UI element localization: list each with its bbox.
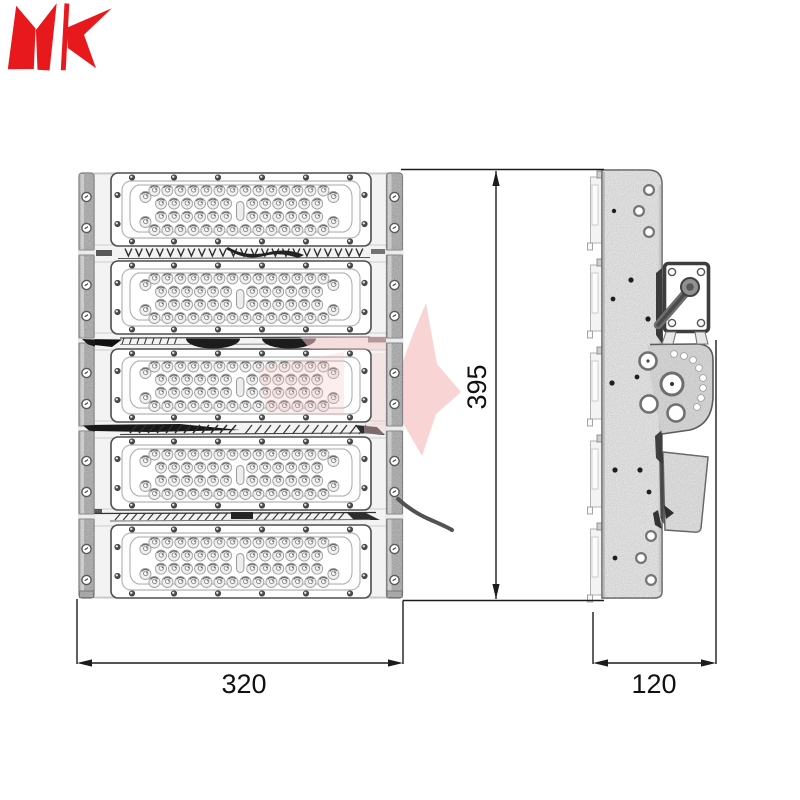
svg-text:320: 320 [221, 669, 266, 699]
svg-text:120: 120 [631, 669, 676, 699]
svg-text:395: 395 [462, 364, 492, 409]
